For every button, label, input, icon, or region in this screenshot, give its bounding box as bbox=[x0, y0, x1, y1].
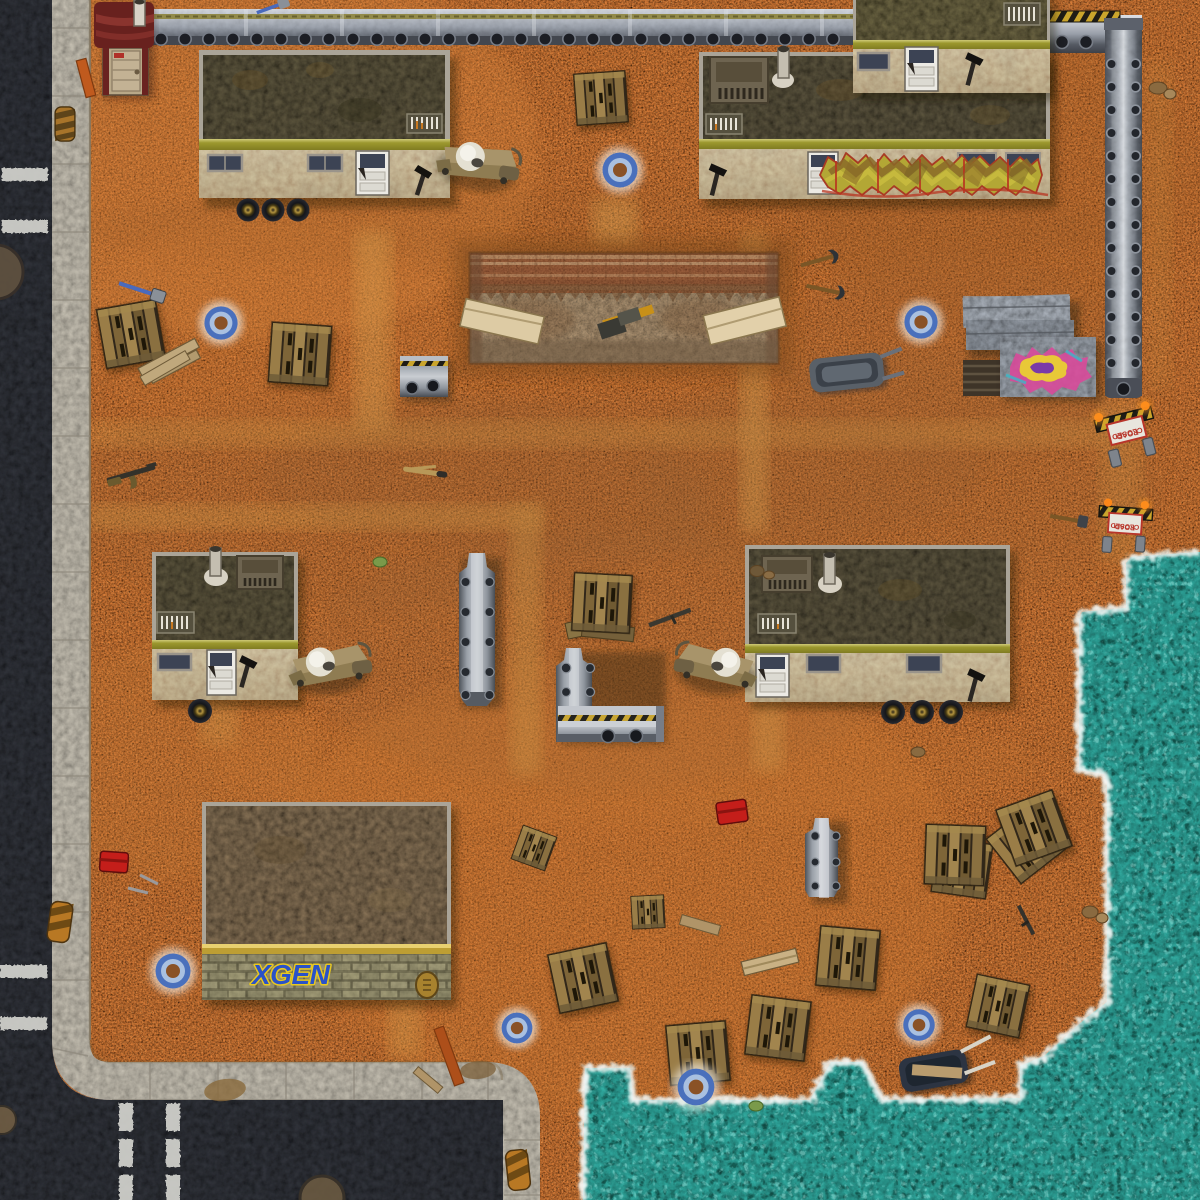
svg-text:XGEN: XGEN bbox=[250, 959, 331, 990]
